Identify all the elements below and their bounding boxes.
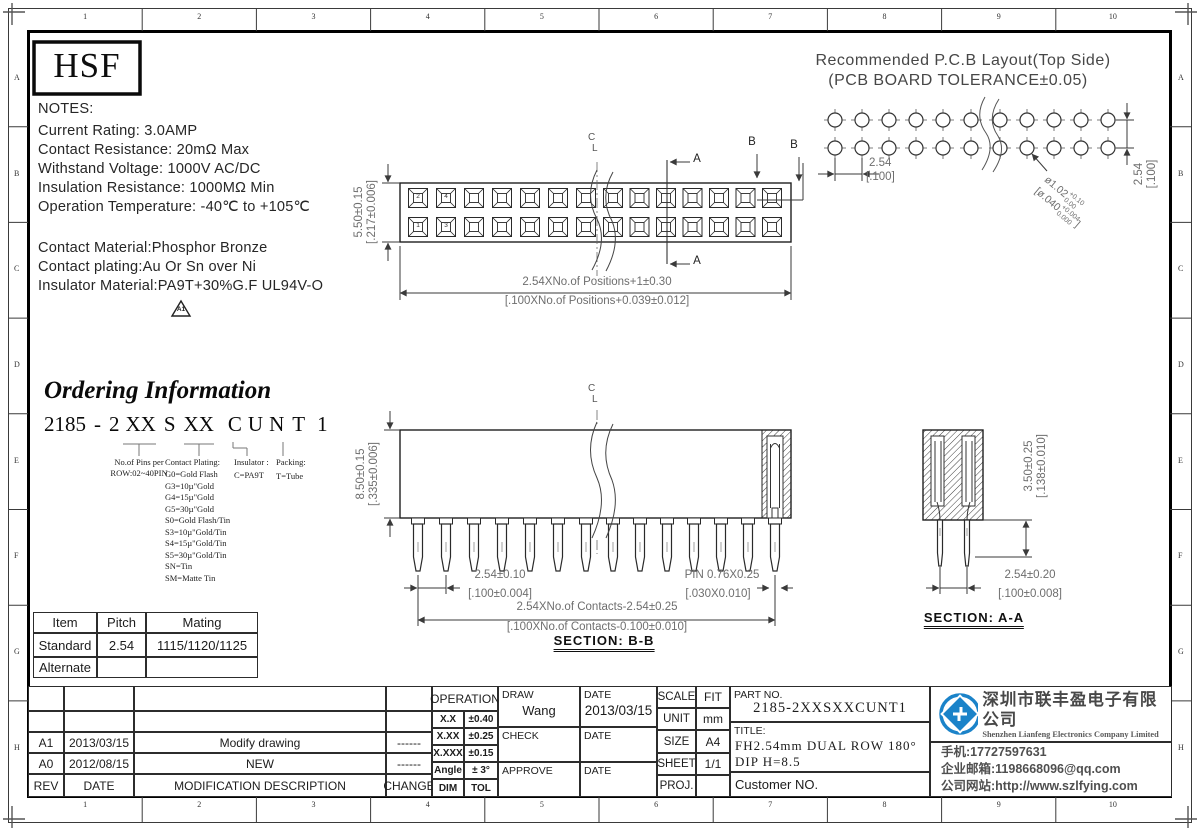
revision-empty-cell — [386, 711, 432, 732]
part-code-segment: 1 — [317, 412, 328, 437]
mating-cell: Standard — [33, 633, 97, 657]
part-code-segment: U — [248, 412, 263, 437]
revision-cell: 2013/03/15 — [64, 732, 134, 753]
mating-cell — [97, 657, 146, 678]
tolerance-tol-cell: TOL — [464, 779, 498, 797]
revision-empty-cell — [134, 686, 386, 711]
revision-empty-cell — [28, 711, 64, 732]
tolerance-dim-cell: DIM — [432, 779, 464, 797]
approve-date-cell: DATE — [580, 762, 657, 797]
mating-header-cell: Item — [33, 612, 97, 633]
revision-cell: NEW — [134, 753, 386, 774]
revision-empty-cell — [64, 686, 134, 711]
company-phone: 手机:17727597631 — [941, 744, 1047, 761]
company-website: 公司网站:http://www.szlfying.com — [941, 778, 1138, 795]
info-value-cell: FIT — [696, 686, 730, 708]
part-code-segment: S — [164, 412, 176, 437]
tolerance-dim-cell: Angle — [432, 762, 464, 779]
check-cell-label: CHECK — [502, 730, 539, 742]
part-code-segment: 2185 — [44, 412, 86, 437]
mating-header-cell: Mating — [146, 612, 258, 633]
info-label-cell: UNIT — [657, 708, 696, 730]
part-code-segment: - — [94, 412, 101, 437]
approve-cell: APPROVE — [498, 762, 580, 797]
info-value-cell: 1/1 — [696, 753, 730, 775]
part-code-segment: C — [228, 412, 242, 437]
info-value-cell: mm — [696, 708, 730, 730]
draw-cell: DRAWWang — [498, 686, 580, 727]
tolerance-dim-cell: X.X — [432, 711, 464, 728]
revision-empty-cell — [64, 711, 134, 732]
info-value-cell: A4 — [696, 730, 730, 753]
ordering-part-code: 2185-2XXSXXCUNT1 — [44, 412, 328, 437]
draw-cell-label: DRAW — [502, 689, 534, 701]
part-code-segment: XX — [126, 412, 156, 437]
title-cell-label: TITLE: — [734, 725, 766, 737]
company-brand-cell: 深圳市联丰盈电子有限公司Shenzhen Lianfeng Electronic… — [930, 686, 1172, 742]
revision-header-cell: REV — [28, 774, 64, 797]
revision-cell: Modify drawing — [134, 732, 386, 753]
revision-cell: ------ — [386, 753, 432, 774]
revision-header-cell: DATE — [64, 774, 134, 797]
company-email: 企业邮箱:1198668096@qq.com — [941, 761, 1121, 778]
mating-cell: 2.54 — [97, 633, 146, 657]
check-cell: CHECK — [498, 727, 580, 762]
part-code-segment: XX — [184, 412, 214, 437]
part-no-cell-label: PART NO. — [734, 689, 782, 701]
tolerance-dim-cell: X.XX — [432, 728, 464, 745]
company-name-en: Shenzhen Lianfeng Electronics Company Li… — [982, 730, 1171, 739]
title-cell: TITLE:FH2.54mm DUAL ROW 180° DIP H=8.5 — [730, 722, 930, 772]
tolerance-dim-cell: X.XXX — [432, 745, 464, 762]
mating-cell — [146, 657, 258, 678]
revision-cell: A0 — [28, 753, 64, 774]
company-name-cn: 深圳市联丰盈电子有限公司 — [982, 690, 1171, 730]
draw-date-cell: DATE2013/03/15 — [580, 686, 657, 727]
mating-cell: 1115/1120/1125 — [146, 633, 258, 657]
info-label-cell: SIZE — [657, 730, 696, 753]
info-label-cell: SCALE — [657, 686, 696, 708]
revision-cell: 2012/08/15 — [64, 753, 134, 774]
check-date-cell: DATE — [580, 727, 657, 762]
approve-date-cell-label: DATE — [584, 765, 611, 777]
draw-date-cell-label: DATE — [584, 689, 611, 701]
company-contact-cell: 手机:17727597631企业邮箱:1198668096@qq.com公司网站… — [930, 742, 1172, 797]
info-label-cell: SHEET — [657, 753, 696, 775]
part-no-cell: PART NO.2185-2XXSXXCUNT1 — [730, 686, 930, 722]
tolerance-tol-cell: ±0.25 — [464, 728, 498, 745]
part-code-segment: N — [269, 412, 284, 437]
customer-no-cell: Customer NO. — [730, 772, 930, 797]
revision-empty-cell — [28, 686, 64, 711]
revision-cell: A1 — [28, 732, 64, 753]
revision-cell: ------ — [386, 732, 432, 753]
check-date-cell-label: DATE — [584, 730, 611, 742]
tolerance-tol-cell: ±0.15 — [464, 745, 498, 762]
drawing-sheet: 1122334455667788991010AABBCCDDEEFFGGHHHS… — [0, 0, 1200, 831]
projection-symbol-cell — [696, 775, 730, 797]
revision-header-cell: MODIFICATION DESCRIPTION — [134, 774, 386, 797]
revision-header-cell: CHANGE — [386, 774, 432, 797]
approve-cell-label: APPROVE — [502, 765, 553, 777]
title-cell-value: FH2.54mm DUAL ROW 180° DIP H=8.5 — [735, 738, 929, 770]
tolerance-heading-cell: OPERATION — [432, 686, 498, 711]
info-label-cell: PROJ. — [657, 775, 696, 797]
revision-empty-cell — [386, 686, 432, 711]
mating-cell: Alternate — [33, 657, 97, 678]
mating-header-cell: Pitch — [97, 612, 146, 633]
company-logo-icon — [937, 691, 978, 737]
tolerance-tol-cell: ± 3° — [464, 762, 498, 779]
part-code-segment: T — [292, 412, 305, 437]
revision-empty-cell — [134, 711, 386, 732]
title-block: 2185-2XXSXXCUNT1ItemPitchMatingStandard2… — [0, 0, 1200, 831]
part-code-segment: 2 — [109, 412, 120, 437]
tolerance-tol-cell: ±0.40 — [464, 711, 498, 728]
